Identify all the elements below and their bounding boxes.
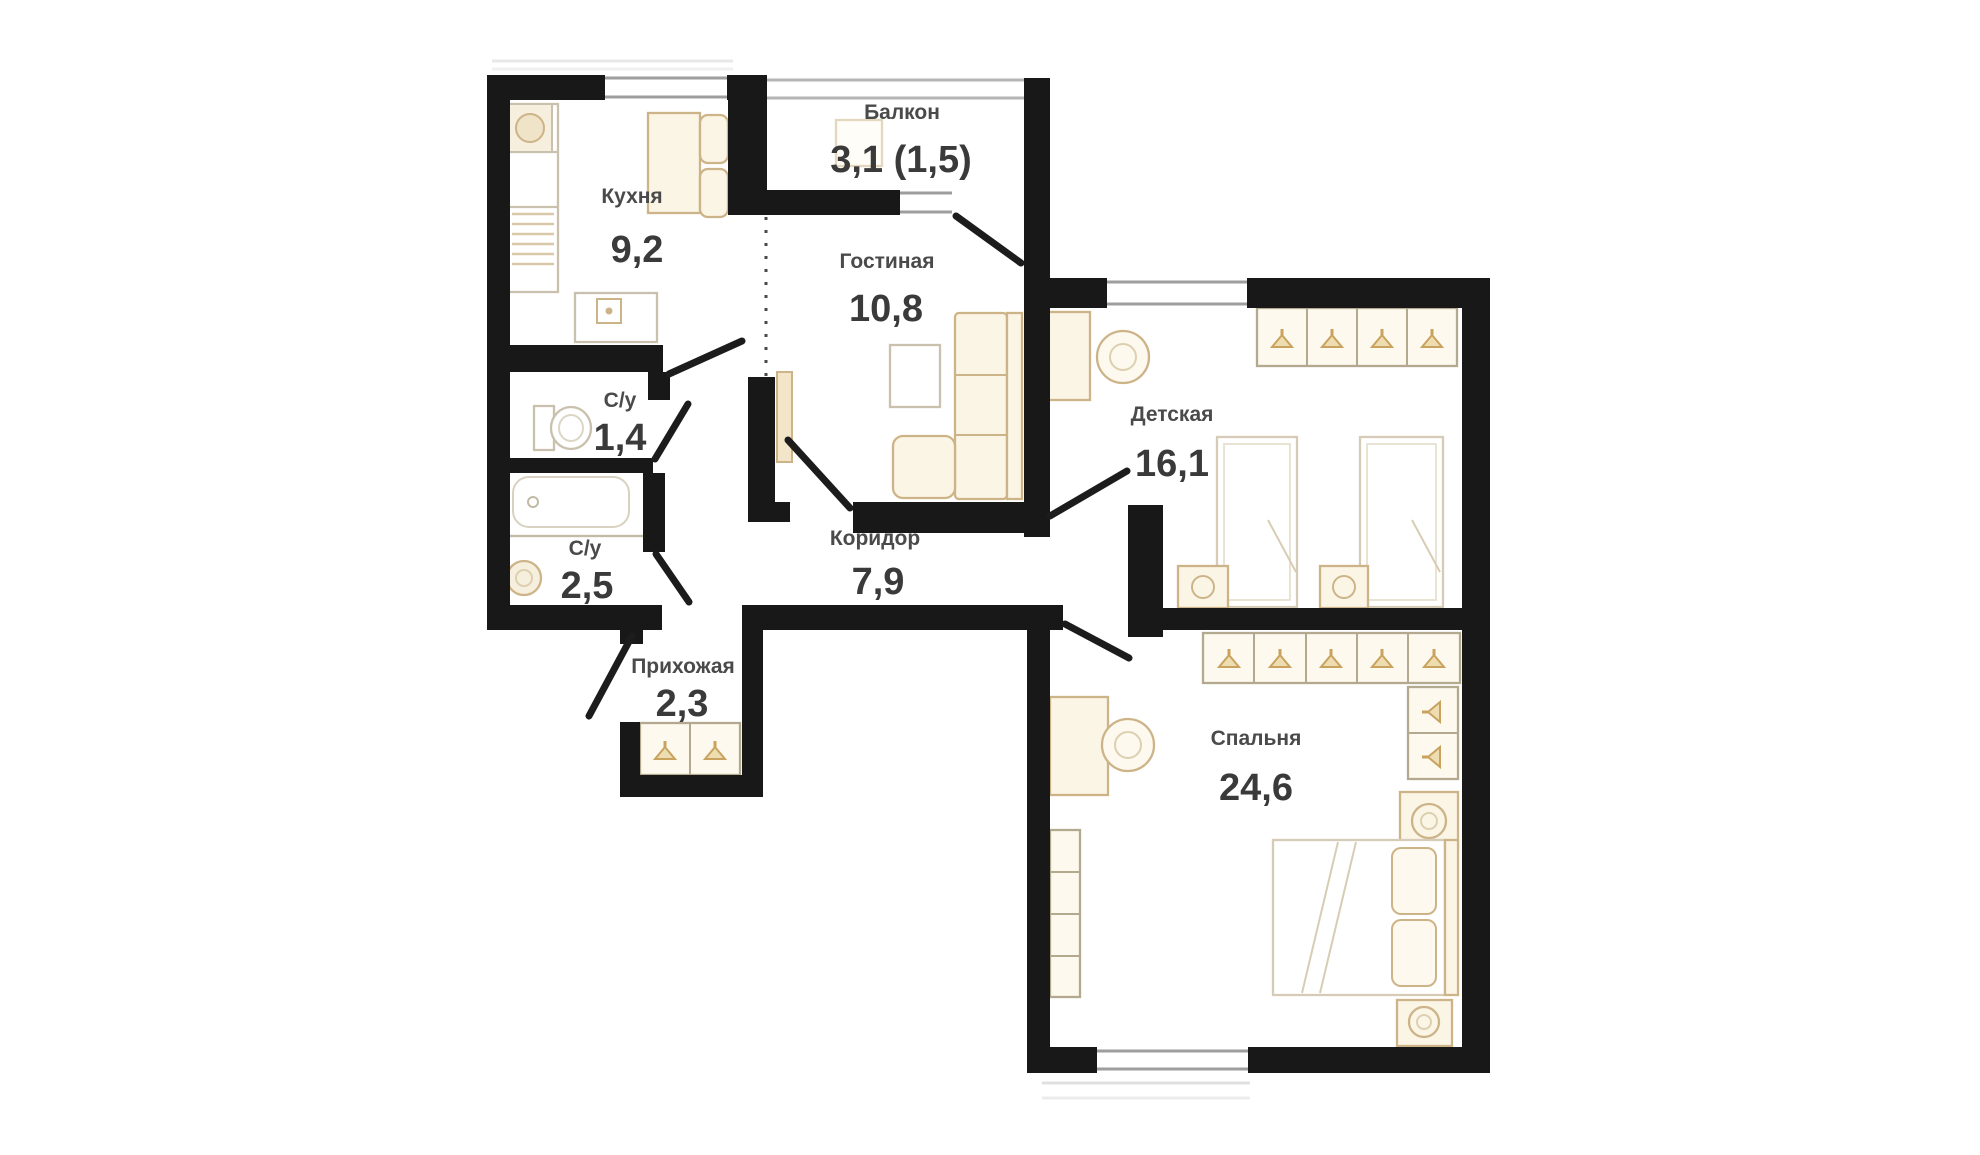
room-bathroom: С/у 2,5 [561, 537, 614, 607]
wc-door-swing [655, 404, 688, 459]
bedroom-desk [1050, 697, 1154, 795]
room-living: Гостиная 10,8 [840, 250, 935, 330]
coffee-table [890, 345, 940, 407]
kitchen-counter [508, 104, 558, 292]
bathtub-icon [504, 468, 647, 536]
bedroom-nightstand-bottom [1397, 1000, 1452, 1046]
bedroom-shelf [1050, 830, 1080, 997]
kitchen-window [605, 75, 727, 100]
room-bedroom: Спальня 24,6 [1211, 727, 1302, 809]
balcony-window [900, 190, 952, 215]
floor-plan: Кухня 9,2 Балкон 3,1 (1,5) Гостиная 10,8… [0, 0, 1980, 1155]
room-area: 3,1 (1,5) [830, 139, 972, 181]
bedroom-side-wardrobe [1408, 687, 1458, 779]
room-name: Спальня [1211, 727, 1302, 750]
toilet-icon [534, 406, 591, 450]
bedroom-wardrobe [1203, 633, 1460, 683]
bedroom-door-swing [1065, 624, 1129, 658]
kitchen-ledge [492, 61, 733, 69]
room-name: Коридор [830, 527, 920, 550]
room-children: Детская 16,1 [1131, 403, 1214, 485]
kitchen-door-swing [669, 341, 742, 374]
room-kitchen: Кухня 9,2 [601, 185, 663, 271]
room-area: 9,2 [611, 229, 664, 271]
room-area: 2,5 [561, 565, 614, 607]
room-name: Кухня [601, 185, 662, 208]
tv-unit [777, 372, 792, 462]
bathroom-door-swing [656, 554, 689, 602]
room-balcony: Балкон 3,1 (1,5) [830, 101, 972, 181]
room-name: Прихожая [631, 655, 735, 678]
room-area: 2,3 [656, 683, 709, 725]
kitchen-oven [575, 293, 657, 342]
children-window [1107, 278, 1247, 308]
room-area: 16,1 [1135, 443, 1209, 485]
floor-plan-page: Кухня 9,2 Балкон 3,1 (1,5) Гостиная 10,8… [0, 0, 1980, 1155]
room-wc: С/у 1,4 [594, 389, 647, 459]
room-hallway: Прихожая 2,3 [631, 655, 735, 725]
hallway-wardrobe [640, 723, 740, 775]
kitchen-sink-icon [516, 114, 544, 142]
room-name: Гостиная [840, 250, 935, 273]
bath-sink-icon [507, 561, 541, 595]
room-name: Балкон [864, 101, 940, 124]
room-area: 1,4 [594, 417, 647, 459]
children-desk [1048, 312, 1149, 400]
room-area: 10,8 [849, 288, 923, 330]
entry-door-swing [589, 636, 632, 716]
double-bed [1273, 840, 1458, 995]
children-door-swing [1050, 471, 1127, 516]
room-name: Детская [1131, 403, 1214, 426]
room-corridor: Коридор 7,9 [830, 527, 920, 603]
children-bed-2 [1360, 437, 1443, 607]
room-name: С/у [604, 389, 637, 412]
room-area: 24,6 [1219, 767, 1293, 809]
balcony-door-swing [956, 216, 1021, 263]
living-door-swing [788, 440, 850, 508]
balcony-railing [767, 78, 1024, 100]
children-nightstand-2 [1320, 566, 1368, 608]
room-name: С/у [569, 537, 602, 560]
children-wardrobe [1257, 308, 1457, 366]
room-area: 7,9 [852, 561, 905, 603]
children-nightstand-1 [1178, 566, 1228, 608]
